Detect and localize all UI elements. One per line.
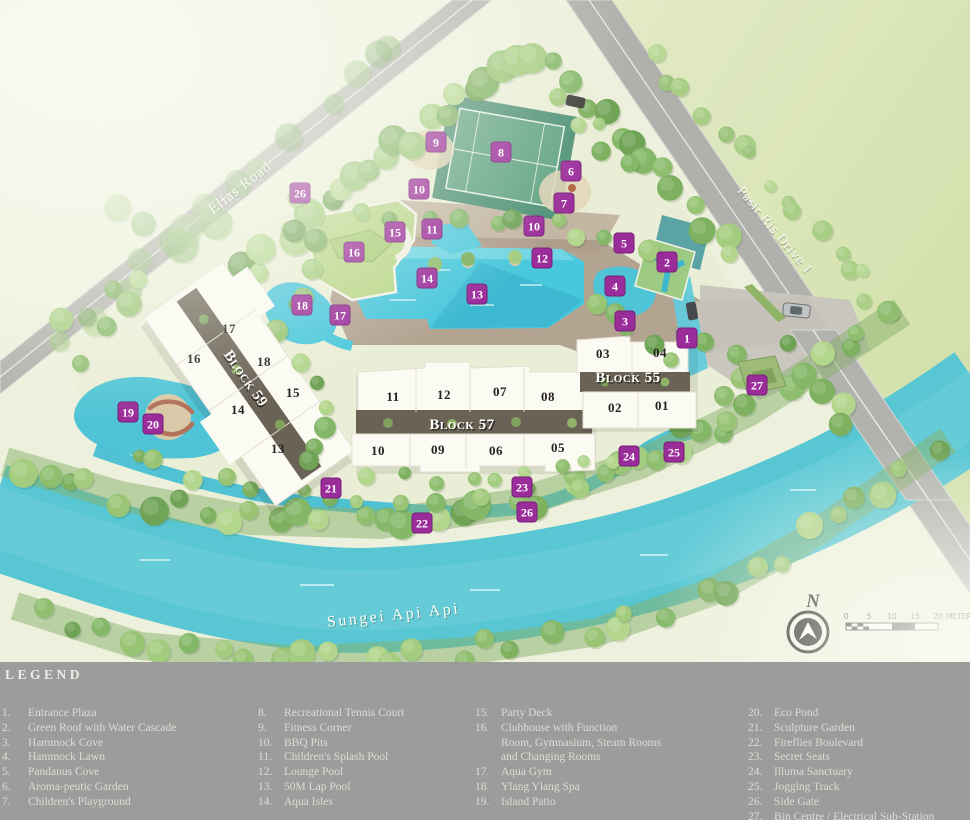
legend-item: 8.Recreational Tennis Court xyxy=(258,706,404,721)
legend-item-number: 22. xyxy=(748,736,774,751)
legend-item-label: Secret Seats xyxy=(774,750,830,765)
map-marker-22: 22 xyxy=(412,513,432,533)
legend-item-number: 17. xyxy=(475,765,501,780)
svg-text:10: 10 xyxy=(413,183,425,197)
legend-item-label: Children's Playground xyxy=(28,795,131,810)
unit-number: 14 xyxy=(231,402,245,417)
legend-item-number: 5. xyxy=(2,765,28,780)
legend-item-label: Lounge Pool xyxy=(284,765,343,780)
legend-item-label: Party Deck xyxy=(501,706,552,721)
site-plan-page: Elias RoadElias RoadPasir Ris Drive 1Pas… xyxy=(0,0,970,820)
svg-text:1: 1 xyxy=(684,332,690,346)
legend-item-label: Jogging Track xyxy=(774,780,840,795)
legend-item-label: Children's Splash Pool xyxy=(284,750,388,765)
legend-item: 1.Entrance Plaza xyxy=(2,706,176,721)
legend-item: 18.Ylang Ylang Spa xyxy=(475,780,661,795)
legend-item-label: Entrance Plaza xyxy=(28,706,97,721)
map-marker-2: 2 xyxy=(657,252,677,272)
map-marker-21: 21 xyxy=(321,478,341,498)
map-marker-12: 12 xyxy=(532,248,552,268)
svg-text:5: 5 xyxy=(621,237,627,251)
legend-item: 2.Green Roof with Water Cascade xyxy=(2,721,176,736)
legend-item-label: Aqua Isles xyxy=(284,795,333,810)
legend-item-number: 9. xyxy=(258,721,284,736)
legend-item: 14.Aqua Isles xyxy=(258,795,404,810)
svg-text:22: 22 xyxy=(416,517,428,531)
legend-title: LEGEND xyxy=(5,667,83,683)
legend-column: 15.Party Deck16.Clubhouse with Function … xyxy=(475,706,661,810)
map-marker-27: 27 xyxy=(747,375,767,395)
svg-text:9: 9 xyxy=(433,136,439,150)
map-marker-18: 18 xyxy=(292,295,312,315)
legend-item: 9.Fitness Corner xyxy=(258,721,404,736)
legend-item-number: 13. xyxy=(258,780,284,795)
map-marker-15: 15 xyxy=(385,222,405,242)
unit-number: 16 xyxy=(187,351,201,366)
legend-item-number: 23. xyxy=(748,750,774,765)
legend-column: 8.Recreational Tennis Court9.Fitness Cor… xyxy=(258,706,404,810)
map-marker-9: 9 xyxy=(426,132,446,152)
map-marker-24: 24 xyxy=(619,446,639,466)
map-marker-5: 5 xyxy=(614,233,634,253)
legend-item-label: Island Patio xyxy=(501,795,556,810)
svg-text:25: 25 xyxy=(668,446,680,460)
legend-item-label: Recreational Tennis Court xyxy=(284,706,404,721)
legend-item: 20.Eco Pond xyxy=(748,706,934,721)
compass-north-label: N xyxy=(805,591,821,612)
map-marker-6: 6 xyxy=(561,161,581,181)
legend-item: 3.Hammock Cove xyxy=(2,736,176,751)
legend-item: 19.Island Patio xyxy=(475,795,661,810)
legend-item-number: 15. xyxy=(475,706,501,721)
legend-item-number: 3. xyxy=(2,736,28,751)
legend-item-number: 12. xyxy=(258,765,284,780)
map-marker-4: 4 xyxy=(605,276,625,296)
scale-tick: 10 xyxy=(887,612,897,621)
legend-item-label: Bin Centre / Electrical Sub-Station xyxy=(774,810,934,820)
legend-item-number: 10. xyxy=(258,736,284,751)
svg-text:6: 6 xyxy=(568,165,574,179)
legend-item-number: 18. xyxy=(475,780,501,795)
map-marker-26: 26 xyxy=(517,502,537,522)
block-label: Block 57 xyxy=(429,417,494,433)
car xyxy=(782,303,810,319)
legend-item: 10.BBQ Pits xyxy=(258,736,404,751)
map-marker-26: 26 xyxy=(290,183,310,203)
map-marker-16: 16 xyxy=(344,242,364,262)
legend-item-number: 24. xyxy=(748,765,774,780)
svg-text:27: 27 xyxy=(751,379,763,393)
legend-item-number: 6. xyxy=(2,780,28,795)
unit-number: 03 xyxy=(596,346,610,361)
map-marker-10: 10 xyxy=(524,216,544,236)
map-marker-11: 11 xyxy=(422,219,442,239)
legend-item-number: 14. xyxy=(258,795,284,810)
svg-text:18: 18 xyxy=(296,299,308,313)
legend-item-number: 27. xyxy=(748,810,774,820)
legend-item-number: 7. xyxy=(2,795,28,810)
svg-text:8: 8 xyxy=(498,146,504,160)
legend-item: 13.50M Lap Pool xyxy=(258,780,404,795)
legend-item-number: 1. xyxy=(2,706,28,721)
unit-number: 09 xyxy=(431,442,445,457)
legend-item-number: 11. xyxy=(258,750,284,765)
legend-item: 21.Sculpture Garden xyxy=(748,721,934,736)
legend-item-label: Hammock Cove xyxy=(28,736,103,751)
unit-number: 05 xyxy=(551,440,565,455)
unit-number: 12 xyxy=(437,387,451,402)
legend-item-label: Aroma-peutic Garden xyxy=(28,780,129,795)
legend-item-label: Green Roof with Water Cascade xyxy=(28,721,176,736)
site-map: Elias RoadElias RoadPasir Ris Drive 1Pas… xyxy=(0,0,970,662)
legend-item-label: Eco Pond xyxy=(774,706,818,721)
legend-item: 16.Clubhouse with Function Room, Gymnasi… xyxy=(475,721,661,765)
unit-number: 01 xyxy=(655,398,669,413)
legend-item: 22.Fireflies Boulevard xyxy=(748,736,934,751)
legend-item-number: 25. xyxy=(748,780,774,795)
unit-number: 18 xyxy=(257,354,271,369)
map-marker-25: 25 xyxy=(664,442,684,462)
legend-item: 24.Illuma Sanctuary xyxy=(748,765,934,780)
legend-item-label: Sculpture Garden xyxy=(774,721,855,736)
svg-text:7: 7 xyxy=(561,197,567,211)
scale-unit: METERS xyxy=(946,612,970,621)
legend-item-label: Side Gate xyxy=(774,795,819,810)
map-marker-17: 17 xyxy=(330,305,350,325)
svg-text:14: 14 xyxy=(421,272,433,286)
legend-item: 11.Children's Splash Pool xyxy=(258,750,404,765)
map-marker-23: 23 xyxy=(512,477,532,497)
svg-text:3: 3 xyxy=(622,315,628,329)
legend-item-number: 16. xyxy=(475,721,501,736)
legend-item: 26.Side Gate xyxy=(748,795,934,810)
legend-item-label: Fireflies Boulevard xyxy=(774,736,863,751)
legend-item-label: Pandanus Cove xyxy=(28,765,99,780)
map-marker-8: 8 xyxy=(491,142,511,162)
map-marker-14: 14 xyxy=(417,268,437,288)
legend-item-label: Ylang Ylang Spa xyxy=(501,780,580,795)
unit-number: 02 xyxy=(608,400,622,415)
legend-item: 23.Secret Seats xyxy=(748,750,934,765)
legend-item: 27.Bin Centre / Electrical Sub-Station xyxy=(748,810,934,820)
legend-item: 17.Aqua Gym xyxy=(475,765,661,780)
unit-number: 13 xyxy=(271,441,285,456)
svg-text:12: 12 xyxy=(536,252,548,266)
legend-item-label: Illuma Sanctuary xyxy=(774,765,853,780)
svg-text:21: 21 xyxy=(325,482,337,496)
legend-item-label: Clubhouse with Function Room, Gymnasium,… xyxy=(501,721,661,765)
map-marker-1: 1 xyxy=(677,328,697,348)
svg-text:11: 11 xyxy=(426,223,437,237)
unit-number: 11 xyxy=(386,389,399,404)
map-marker-19: 19 xyxy=(118,402,138,422)
legend: LEGEND 1.Entrance Plaza2.Green Roof with… xyxy=(0,662,970,820)
map-marker-13: 13 xyxy=(467,284,487,304)
svg-text:20: 20 xyxy=(147,418,159,432)
legend-item-number: 21. xyxy=(748,721,774,736)
svg-text:15: 15 xyxy=(389,226,401,240)
svg-text:17: 17 xyxy=(334,309,346,323)
legend-column: 20.Eco Pond21.Sculpture Garden22.Firefli… xyxy=(748,706,934,820)
map-marker-20: 20 xyxy=(143,414,163,434)
unit-number: 04 xyxy=(653,345,667,360)
legend-item-label: Hammock Lawn xyxy=(28,750,105,765)
svg-text:26: 26 xyxy=(294,187,306,201)
legend-item-label: Fitness Corner xyxy=(284,721,351,736)
unit-number: 17 xyxy=(222,321,236,336)
legend-item-label: Aqua Gym xyxy=(501,765,552,780)
legend-item-number: 8. xyxy=(258,706,284,721)
scale-tick: 20 xyxy=(933,612,943,621)
legend-item: 7.Children's Playground xyxy=(2,795,176,810)
scale-tick: 5 xyxy=(867,612,872,621)
svg-text:10: 10 xyxy=(528,220,540,234)
legend-item-label: BBQ Pits xyxy=(284,736,328,751)
legend-item-number: 19. xyxy=(475,795,501,810)
legend-item-number: 2. xyxy=(2,721,28,736)
unit-number: 07 xyxy=(493,384,507,399)
svg-text:19: 19 xyxy=(122,406,134,420)
block-label: Block 55 xyxy=(595,370,660,386)
unit-number: 10 xyxy=(371,443,385,458)
svg-text:24: 24 xyxy=(623,450,635,464)
unit-number: 06 xyxy=(489,443,503,458)
legend-item: 15.Party Deck xyxy=(475,706,661,721)
unit-number: 08 xyxy=(541,389,555,404)
scale-tick: 15 xyxy=(910,612,920,621)
unit-number: 15 xyxy=(286,385,300,400)
scale-tick: 0 xyxy=(844,612,849,621)
legend-item-number: 26. xyxy=(748,795,774,810)
legend-item: 6.Aroma-peutic Garden xyxy=(2,780,176,795)
legend-column: 1.Entrance Plaza2.Green Roof with Water … xyxy=(2,706,176,810)
legend-item: 25.Jogging Track xyxy=(748,780,934,795)
svg-text:13: 13 xyxy=(471,288,483,302)
svg-text:2: 2 xyxy=(664,256,670,270)
svg-text:26: 26 xyxy=(521,506,533,520)
map-marker-7: 7 xyxy=(554,193,574,213)
svg-text:16: 16 xyxy=(348,246,360,260)
map-marker-10: 10 xyxy=(409,179,429,199)
legend-item: 4.Hammock Lawn xyxy=(2,750,176,765)
map-marker-3: 3 xyxy=(615,311,635,331)
legend-item: 5.Pandanus Cove xyxy=(2,765,176,780)
legend-item-number: 4. xyxy=(2,750,28,765)
legend-item-number: 20. xyxy=(748,706,774,721)
svg-text:23: 23 xyxy=(516,481,528,495)
legend-item-label: 50M Lap Pool xyxy=(284,780,350,795)
svg-text:4: 4 xyxy=(612,280,618,294)
legend-item: 12.Lounge Pool xyxy=(258,765,404,780)
